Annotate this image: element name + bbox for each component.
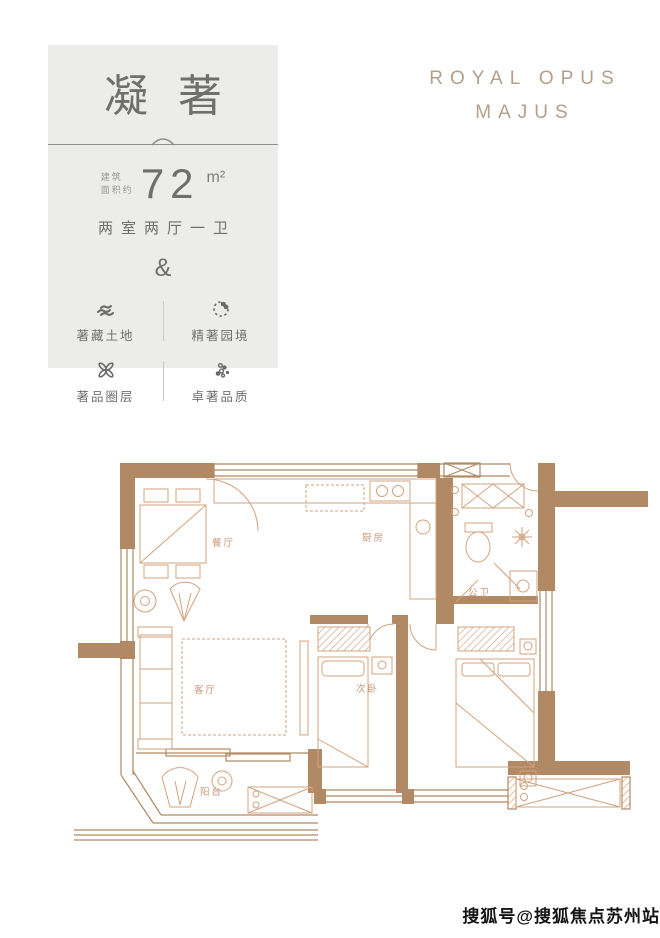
ampersand: & bbox=[48, 254, 278, 283]
title-divider bbox=[48, 135, 278, 147]
room-label-living: 客厅 bbox=[194, 684, 217, 696]
room-label-bath: 公卫 bbox=[468, 588, 491, 599]
terraced-land-icon bbox=[95, 299, 117, 319]
feature-label: 卓著品质 bbox=[191, 386, 249, 405]
room-label-balcony: 阳台 bbox=[200, 786, 223, 798]
poster-page: 凝著 建筑 面积约 72 m² 两室两厅一卫 & bbox=[0, 0, 660, 938]
brand-line2: MAJUS bbox=[408, 102, 642, 124]
brand-line1: ROYAL OPUS bbox=[408, 68, 642, 90]
feature-label: 著藏土地 bbox=[76, 325, 134, 344]
feature-quality: 卓著品质 bbox=[163, 360, 278, 405]
watermark: 搜狐号@搜狐焦点苏州站 bbox=[462, 902, 660, 927]
floorplan: 餐厅 厨房 公卫 客厅 次卧 阳台 bbox=[70, 443, 650, 843]
feature-column-divider bbox=[163, 361, 164, 401]
layout-text: 两室两厅一卫 bbox=[48, 217, 278, 238]
feature-label: 精著园境 bbox=[191, 325, 249, 344]
area-row: 建筑 面积约 72 m² bbox=[48, 163, 278, 205]
area-prefix-line1: 建筑 bbox=[101, 171, 134, 184]
feature-label: 著品圈层 bbox=[76, 386, 134, 405]
peak-ornament-icon bbox=[150, 135, 176, 147]
doors-layer bbox=[206, 463, 538, 650]
brand-block: ROYAL OPUS MAJUS bbox=[408, 68, 642, 124]
feature-land: 著藏土地 bbox=[48, 299, 163, 344]
enso-garden-icon bbox=[211, 299, 231, 319]
feature-garden: 精著园境 bbox=[163, 299, 278, 344]
area-value: 72 bbox=[141, 163, 200, 205]
feature-circle: 著品圈层 bbox=[48, 360, 163, 405]
room-label-kitchen: 厨房 bbox=[362, 532, 385, 544]
floorplan-drawing: 餐厅 厨房 公卫 客厅 次卧 阳台 bbox=[70, 443, 650, 843]
circle-knot-icon bbox=[96, 360, 116, 380]
card-title: 凝著 bbox=[48, 73, 278, 121]
area-unit: m² bbox=[207, 169, 226, 187]
area-prefix: 建筑 面积约 bbox=[101, 171, 134, 197]
room-label-bedroom2: 次卧 bbox=[356, 683, 379, 695]
area-prefix-line2: 面积约 bbox=[101, 184, 134, 197]
feature-grid: 著藏土地 精著园境 著品圈层 bbox=[48, 299, 278, 405]
dots-cluster-icon bbox=[210, 360, 232, 380]
feature-column-divider bbox=[163, 301, 164, 341]
room-label-dining: 餐厅 bbox=[212, 537, 235, 549]
info-card: 凝著 建筑 面积约 72 m² 两室两厅一卫 & bbox=[48, 45, 278, 368]
